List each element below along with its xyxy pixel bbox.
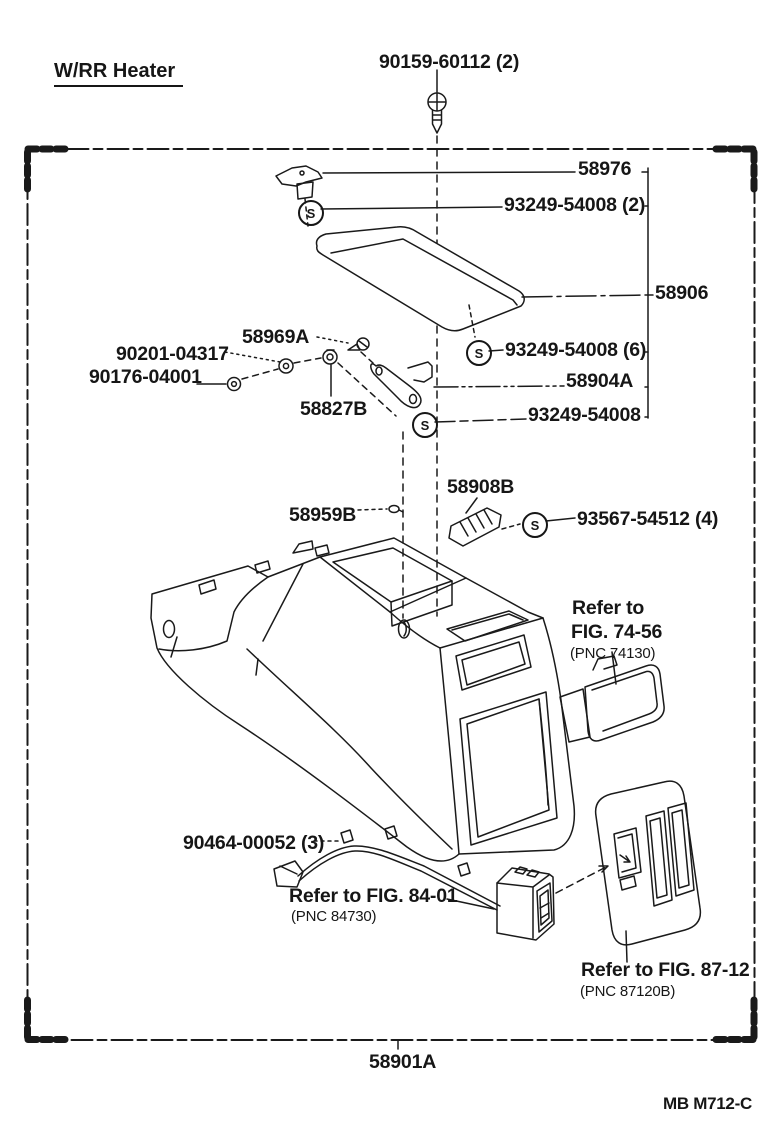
- part-label-58906: 58906: [655, 282, 708, 305]
- clip-58959b-icon: [389, 506, 403, 513]
- part-label-58976: 58976: [578, 158, 631, 181]
- standard-part-symbol: S: [412, 412, 438, 438]
- nut-90176-icon: [228, 378, 241, 391]
- leader-93567: [546, 518, 575, 521]
- leader-58969a: [317, 337, 348, 343]
- leader-58976: [323, 172, 575, 173]
- part-label-90159: 90159-60112 (2): [379, 51, 519, 74]
- lid-to-s-dashed: [469, 305, 475, 337]
- figure-code: MB M712-C: [663, 1094, 752, 1114]
- rocker-switch-drawing: [497, 867, 554, 940]
- control-panel-drawing: [596, 781, 701, 945]
- part-label-58969a: 58969A: [242, 326, 309, 349]
- leader-93249-2: [321, 207, 502, 209]
- reference-fig8712: Refer to FIG. 87-12: [581, 959, 750, 982]
- leader-58906: [522, 295, 648, 297]
- part-label-90176: 90176-04001: [89, 366, 202, 389]
- variant-title: W/RR Heater: [54, 60, 183, 87]
- standard-part-symbol: S: [298, 200, 324, 226]
- nut-90201-icon: [279, 359, 293, 373]
- part-label-93249-6: 93249-54008 (6): [505, 339, 646, 362]
- part-label-93249: 93249-54008: [528, 404, 641, 427]
- part-label-58901a: 58901A: [369, 1051, 436, 1074]
- leader-58908b: [466, 498, 477, 513]
- part-label-93567: 93567-54512 (4): [577, 508, 718, 531]
- part-label-90464: 90464-00052 (3): [183, 832, 324, 855]
- part-label-58827b: 58827B: [300, 398, 367, 421]
- ashtray-door-drawing: [560, 656, 664, 742]
- part-label-58904a: 58904A: [566, 370, 633, 393]
- part-label-93249-2: 93249-54008 (2): [504, 194, 645, 217]
- leader-58959b: [358, 509, 387, 510]
- part-label-58908b: 58908B: [447, 476, 514, 499]
- parts-catalog-page: W/RR Heater 90159-60112 (2) 58976 93249-…: [0, 0, 784, 1144]
- reference-fig7456-pnc: (PNC 74130): [570, 645, 655, 662]
- leader-fig8712: [626, 931, 627, 962]
- grommet-icon: [323, 350, 337, 364]
- switch-to-panel-dashed: [556, 867, 606, 893]
- reference-fig8401: Refer to FIG. 84-01: [289, 885, 458, 908]
- standard-part-symbol: S: [522, 512, 548, 538]
- screw-58969a-icon: [348, 338, 369, 350]
- reference-fig7456-line2: FIG. 74-56: [571, 621, 662, 644]
- armrest-lid-drawing: [316, 227, 524, 331]
- console-body-drawing: [151, 538, 574, 861]
- reference-fig8712-pnc: (PNC 87120B): [580, 983, 675, 1000]
- part-label-58959b: 58959B: [289, 504, 356, 527]
- reference-fig8401-pnc: (PNC 84730): [291, 908, 376, 925]
- leader-58904a: [434, 386, 564, 387]
- leader-90201: [225, 352, 280, 362]
- part-label-90201: 90201-04317: [116, 343, 229, 366]
- leader-93249: [435, 419, 526, 422]
- hinge-to-s-dashed: [502, 524, 520, 529]
- standard-part-symbol: S: [466, 340, 492, 366]
- screw-icon: [428, 70, 446, 133]
- hinge-58908b-drawing: [449, 508, 501, 546]
- reference-fig7456-line1: Refer to: [572, 597, 644, 620]
